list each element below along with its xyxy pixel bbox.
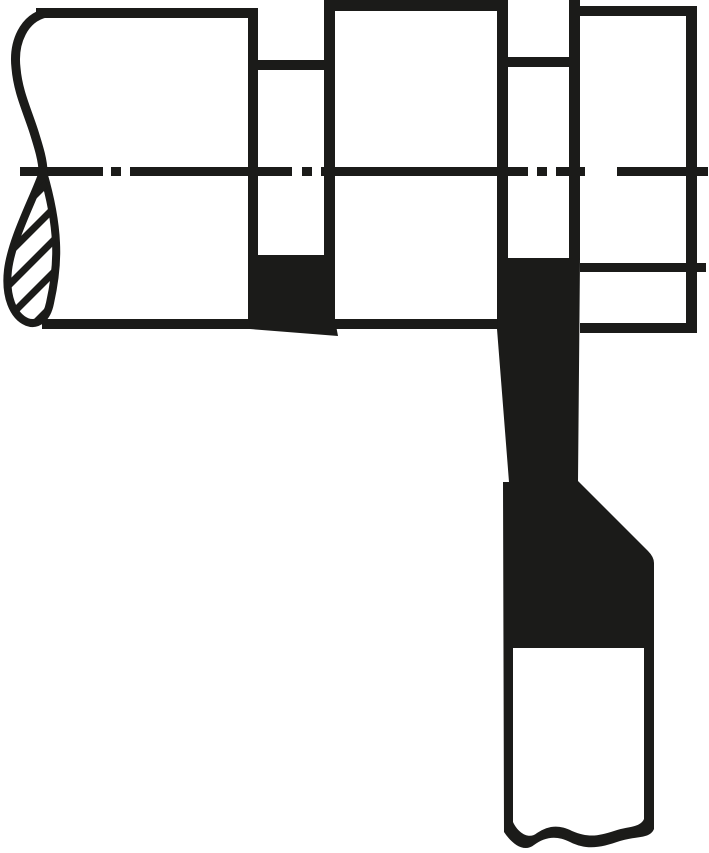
ink-strokes	[0, 13, 80, 432]
middle-cylinder-bottom-edge	[324, 319, 497, 329]
centerline	[20, 167, 708, 176]
right-groove-root-surface	[508, 57, 569, 67]
middle-cylinder-left-face	[324, 0, 335, 329]
machined-diameter-line	[580, 263, 686, 272]
technical-drawing-canvas	[0, 0, 709, 853]
machined-diameter-line-stub	[697, 263, 706, 272]
tool-shank-body	[513, 648, 644, 836]
middle-cylinder-top-edge	[324, 0, 508, 11]
centerline-dash	[556, 167, 585, 176]
centerline-dot	[111, 167, 121, 176]
centerline-dot	[302, 167, 312, 176]
parting-tool-drawing	[0, 0, 709, 853]
centerline-dot	[537, 167, 547, 176]
right-cylinder-bottom-edge	[580, 323, 697, 333]
centerline-dash	[20, 167, 103, 176]
right-cylinder-right-face	[686, 6, 697, 333]
left-cylinder-bottom-edge	[42, 319, 258, 329]
left-groove-root-surface	[258, 60, 324, 70]
centerline-dash	[130, 167, 292, 176]
centerline-dash-stub	[697, 167, 708, 176]
right-cylinder-top-edge	[569, 6, 697, 16]
centerline-dash	[617, 167, 686, 176]
centerline-dash	[321, 167, 528, 176]
right-groove-right-wall	[569, 0, 580, 260]
break-line-curve	[16, 13, 46, 172]
left-cylinder-top-edge	[36, 8, 258, 18]
